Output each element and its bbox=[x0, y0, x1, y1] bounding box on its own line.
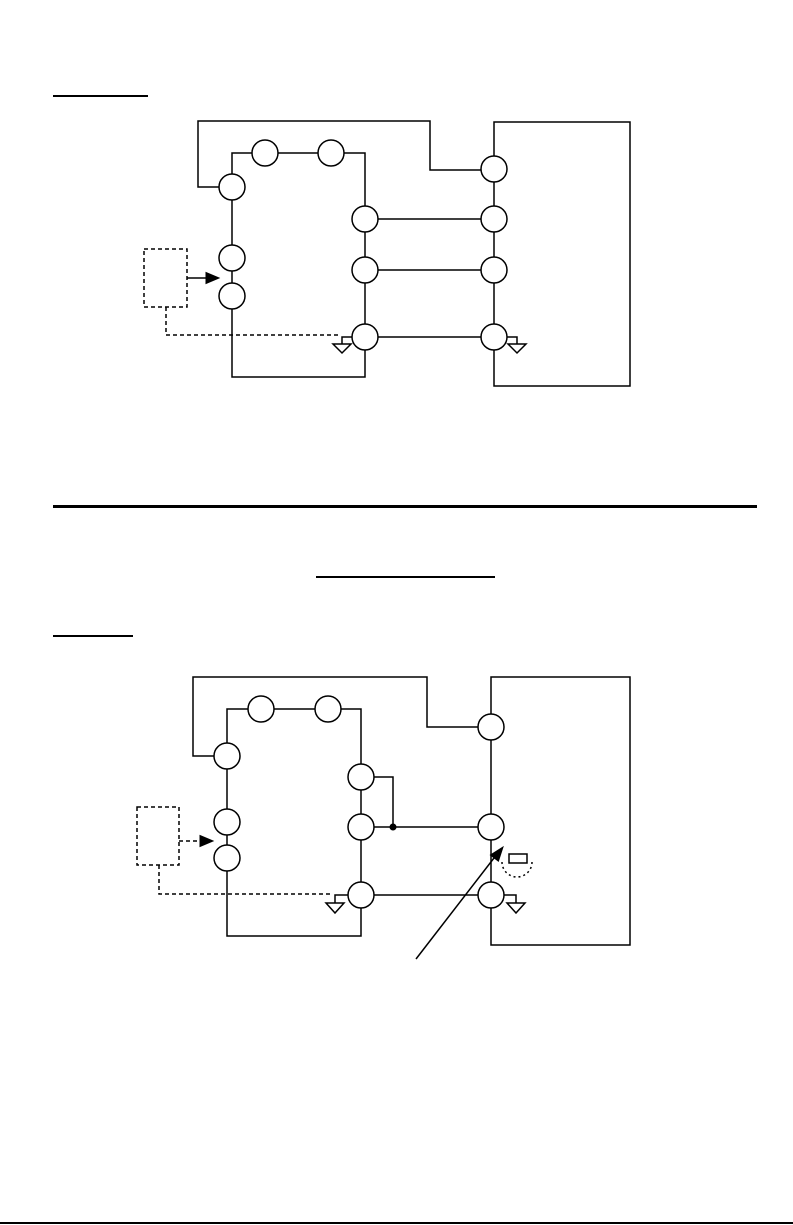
wiring-diagram-1 bbox=[144, 121, 630, 386]
sensor-lead bbox=[166, 307, 341, 335]
screw-symbol bbox=[509, 854, 527, 863]
adjustment-pointer-line bbox=[416, 858, 494, 959]
ground-right-triangle bbox=[508, 344, 526, 353]
ground-right-stub bbox=[507, 337, 517, 344]
tap-wire bbox=[374, 777, 393, 827]
terminal bbox=[481, 257, 507, 283]
ground-right-triangle bbox=[507, 903, 525, 913]
ground-left-triangle bbox=[326, 903, 344, 913]
ground-right-stub bbox=[504, 895, 516, 903]
terminal bbox=[214, 845, 240, 871]
ground-left-stub bbox=[335, 895, 348, 903]
terminal bbox=[318, 140, 344, 166]
terminal bbox=[478, 814, 504, 840]
terminal bbox=[352, 324, 378, 350]
rotation-arc bbox=[502, 862, 532, 877]
terminal bbox=[348, 882, 374, 908]
sensor-box bbox=[144, 249, 187, 307]
terminal bbox=[348, 814, 374, 840]
terminal bbox=[481, 156, 507, 182]
terminal bbox=[214, 743, 240, 769]
terminal bbox=[252, 140, 278, 166]
junction-dot bbox=[390, 824, 397, 831]
ground-left-stub bbox=[342, 337, 352, 344]
terminal bbox=[348, 764, 374, 790]
terminal bbox=[478, 882, 504, 908]
ground-left-triangle bbox=[333, 344, 351, 353]
diagrams-canvas bbox=[0, 0, 793, 1225]
terminal bbox=[219, 283, 245, 309]
terminal bbox=[315, 696, 341, 722]
sensor-arrow-head bbox=[206, 273, 219, 284]
terminal bbox=[352, 257, 378, 283]
sensor-arrow-head bbox=[200, 836, 213, 847]
sensor-box bbox=[137, 807, 179, 865]
terminal bbox=[478, 714, 504, 740]
wiring-diagram-2 bbox=[137, 677, 630, 959]
sensor-lead bbox=[159, 865, 333, 894]
terminal bbox=[219, 174, 245, 200]
terminal bbox=[214, 809, 240, 835]
document-page bbox=[0, 0, 793, 1225]
controller-box bbox=[227, 709, 361, 936]
terminal bbox=[481, 206, 507, 232]
terminal bbox=[352, 206, 378, 232]
terminal bbox=[248, 696, 274, 722]
terminal bbox=[481, 324, 507, 350]
terminal bbox=[219, 245, 245, 271]
